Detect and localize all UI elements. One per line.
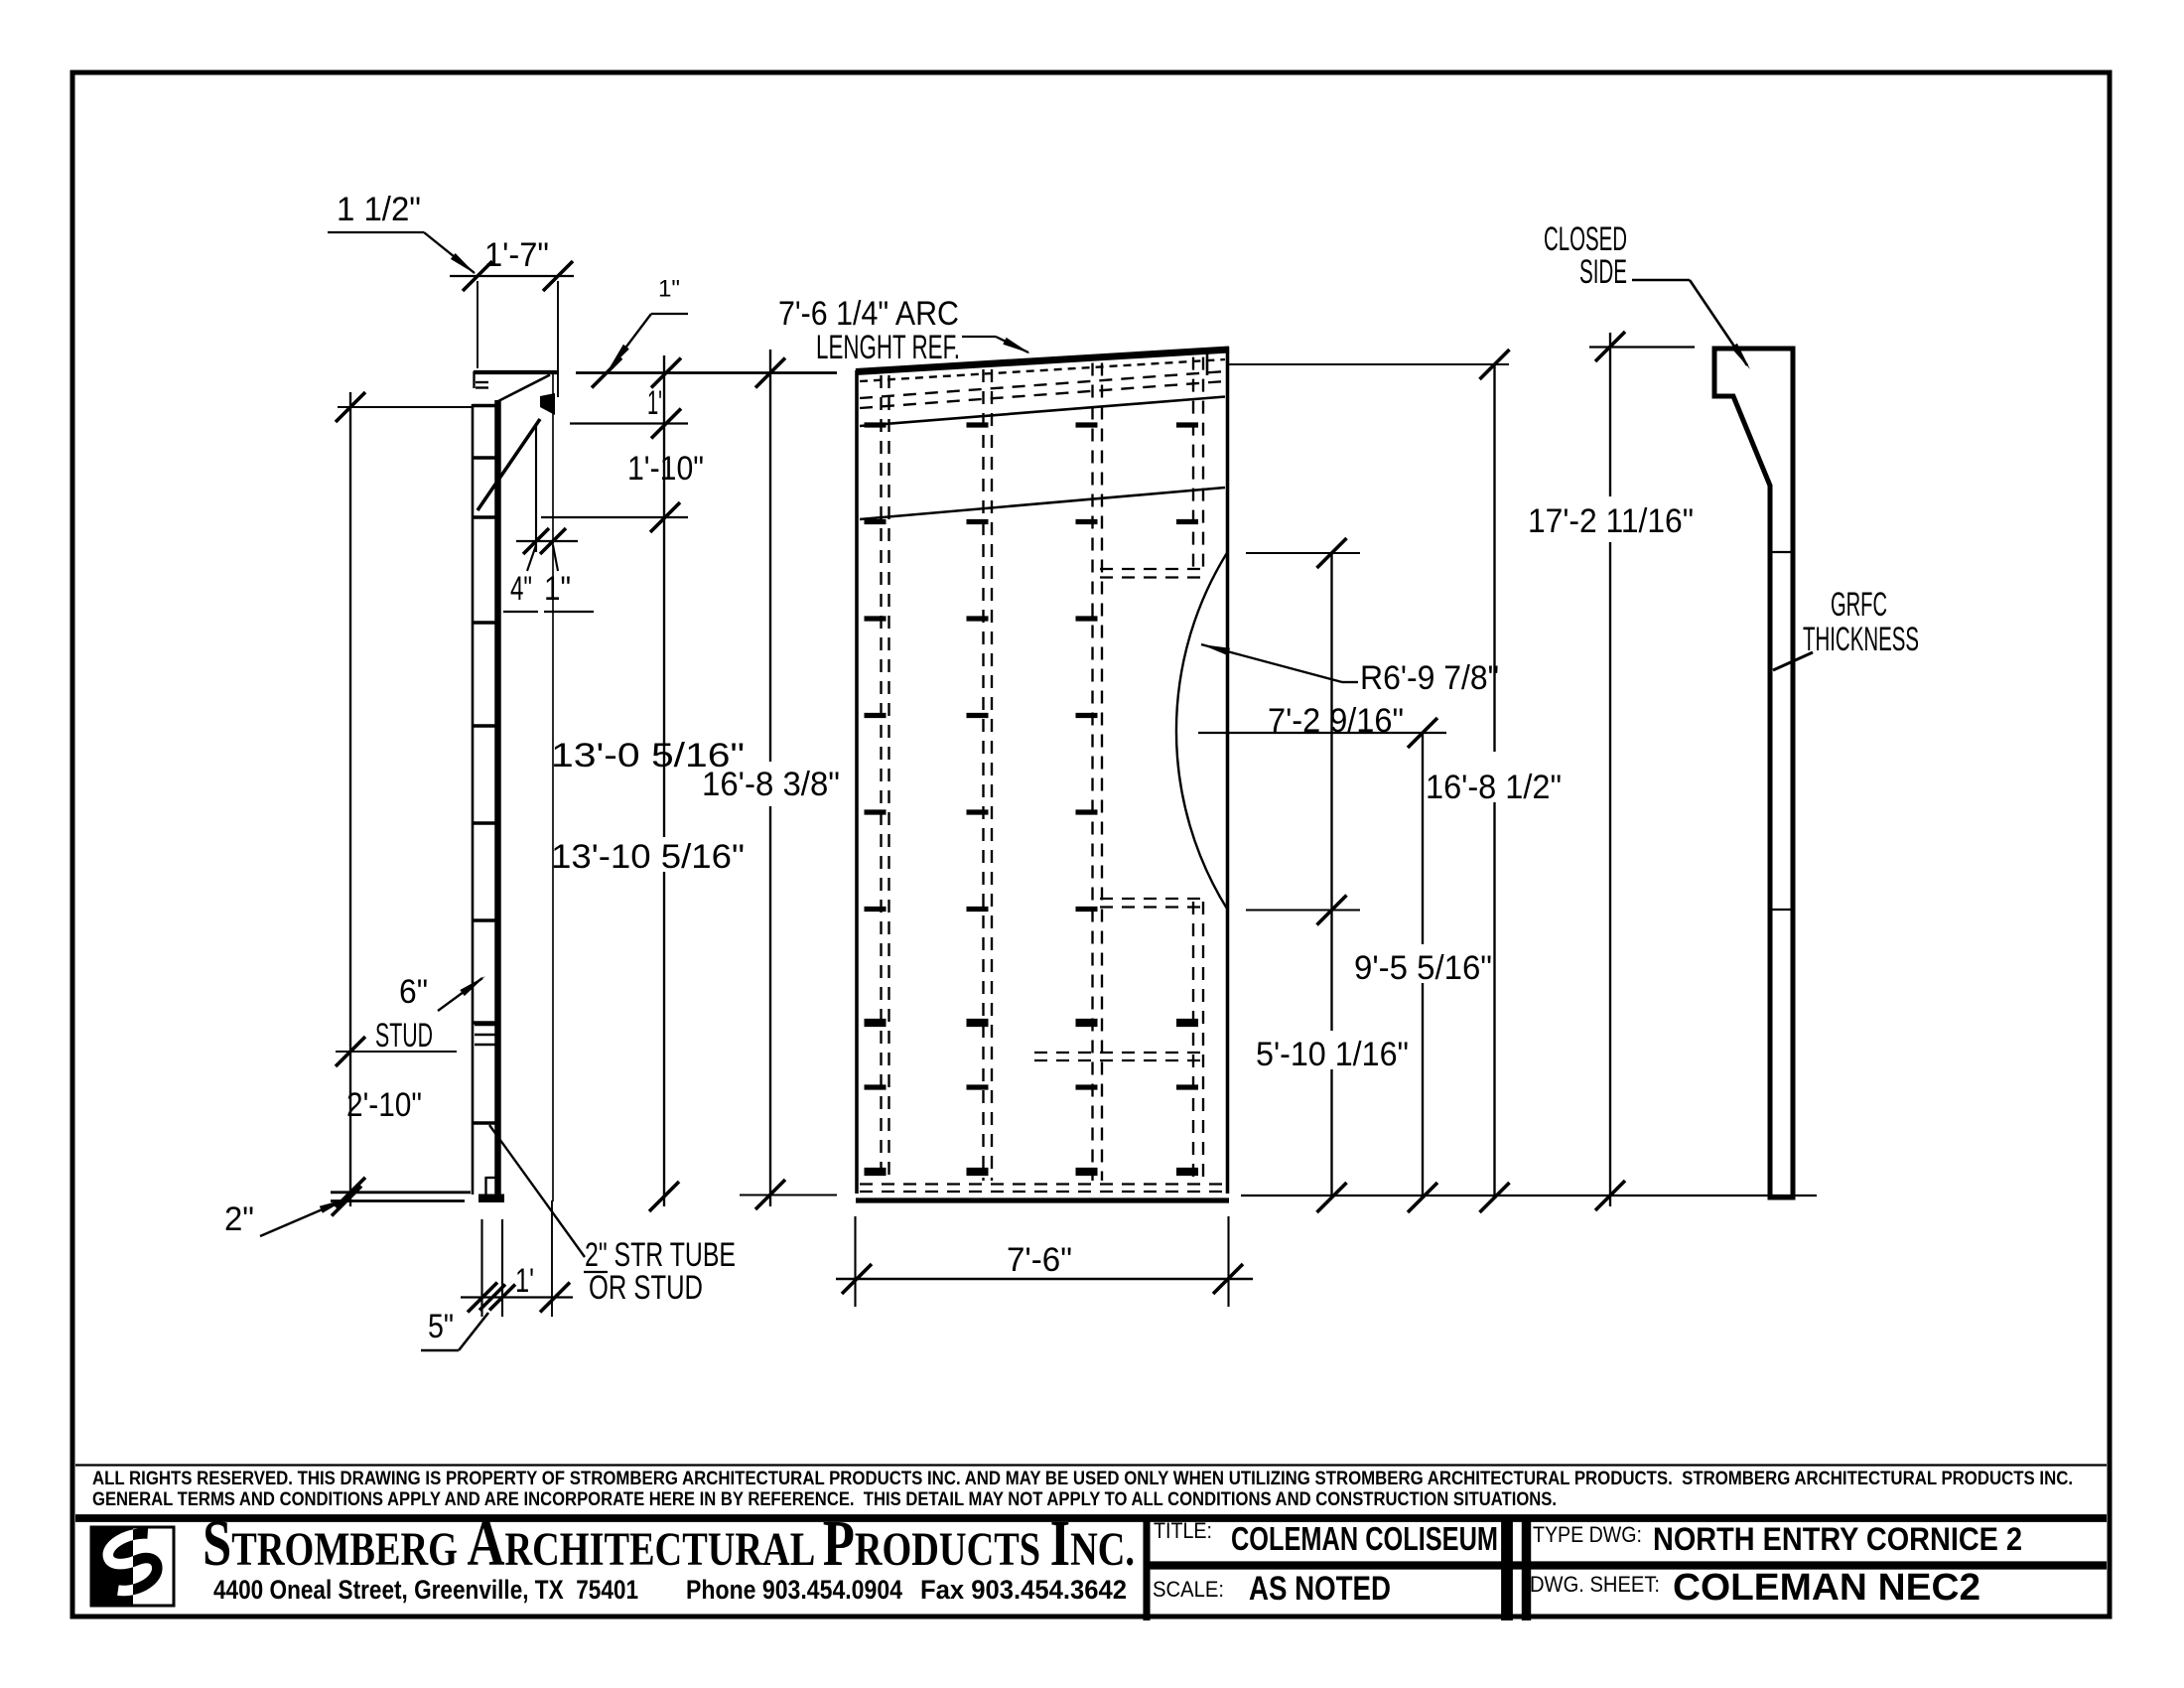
svg-text:AS NOTED: AS NOTED — [1249, 1570, 1391, 1608]
svg-text:5": 5" — [428, 1308, 454, 1345]
svg-text:7'-2 9/16": 7'-2 9/16" — [1268, 702, 1404, 740]
svg-text:Fax 903.454.3642: Fax 903.454.3642 — [920, 1575, 1127, 1605]
svg-text:TYPE DWG:: TYPE DWG: — [1533, 1522, 1642, 1547]
svg-text:GRFC: GRFC — [1831, 586, 1887, 624]
svg-text:1": 1" — [544, 570, 571, 608]
svg-text:Phone 903.454.0904: Phone 903.454.0904 — [686, 1575, 902, 1605]
svg-text:THICKNESS: THICKNESS — [1803, 621, 1919, 658]
svg-text:OR STUD: OR STUD — [589, 1269, 703, 1307]
svg-text:TITLE:: TITLE: — [1154, 1518, 1212, 1543]
svg-text:4": 4" — [510, 570, 532, 608]
svg-text:5'-10 1/16": 5'-10 1/16" — [1256, 1036, 1409, 1073]
svg-text:SCALE:: SCALE: — [1153, 1577, 1224, 1602]
svg-text:COLEMAN NEC2: COLEMAN NEC2 — [1673, 1567, 1980, 1609]
svg-text:SIDE: SIDE — [1579, 253, 1627, 291]
svg-text:2": 2" — [224, 1200, 254, 1238]
svg-text:4400 Oneal Street, Greenville,: 4400 Oneal Street, Greenville, TX 75401 — [213, 1575, 638, 1605]
svg-text:7'-6 1/4" ARC: 7'-6 1/4" ARC — [778, 295, 959, 333]
svg-text:1': 1' — [515, 1262, 534, 1300]
svg-text:NORTH ENTRY CORNICE 2: NORTH ENTRY CORNICE 2 — [1653, 1521, 2022, 1557]
svg-text:1 1/2": 1 1/2" — [337, 191, 421, 228]
svg-text:ALL RIGHTS RESERVED. THIS DRAW: ALL RIGHTS RESERVED. THIS DRAWING IS PRO… — [92, 1469, 2073, 1489]
svg-text:17'-2 11/16": 17'-2 11/16" — [1528, 502, 1694, 540]
svg-text:R6'-9 7/8": R6'-9 7/8" — [1360, 659, 1499, 697]
svg-text:1': 1' — [647, 384, 662, 422]
svg-text:16'-8 1/2": 16'-8 1/2" — [1426, 769, 1562, 806]
svg-text:9'-5 5/16": 9'-5 5/16" — [1354, 949, 1492, 987]
svg-text:DWG. SHEET:: DWG. SHEET: — [1530, 1572, 1660, 1597]
svg-text:1": 1" — [658, 276, 680, 303]
svg-text:STUD: STUD — [375, 1017, 433, 1055]
svg-text:1'-10": 1'-10" — [627, 450, 704, 488]
svg-text:13'-10 5/16": 13'-10 5/16" — [551, 838, 745, 876]
svg-text:2'-10": 2'-10" — [346, 1086, 422, 1124]
svg-text:16'-8 3/8": 16'-8 3/8" — [702, 766, 840, 803]
svg-text:LENGHT REF.: LENGHT REF. — [816, 329, 960, 366]
svg-text:6": 6" — [399, 973, 428, 1011]
svg-text:7'-6": 7'-6" — [1007, 1241, 1072, 1279]
svg-text:1'-7": 1'-7" — [484, 236, 549, 274]
svg-text:COLEMAN COLISEUM: COLEMAN COLISEUM — [1231, 1520, 1498, 1557]
